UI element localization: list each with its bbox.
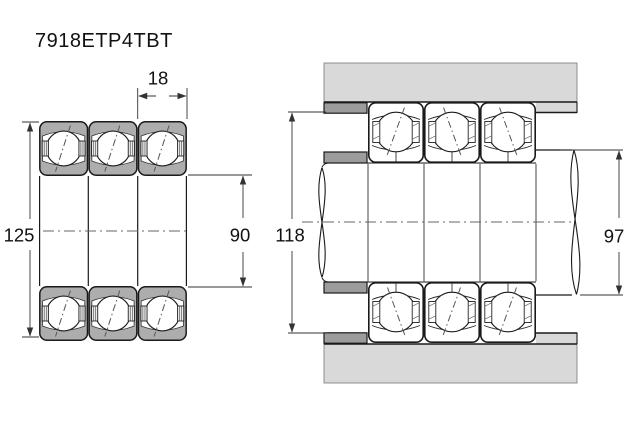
shaft-break-icon (572, 150, 579, 295)
drawing-title: 7918ETP4TBT (35, 30, 173, 52)
outer-diameter-label: 125 (4, 225, 35, 246)
bore-diameter-label: 90 (230, 225, 251, 246)
dimension-outer-diameter: 125 (4, 122, 39, 337)
bearing-unit (138, 122, 186, 175)
bearing-unit (40, 287, 88, 340)
bearing-unit (89, 287, 137, 340)
dimension-housing-abutment: 118 (275, 112, 328, 333)
housing-abutment-label: 118 (275, 225, 305, 246)
front-view: 125 90 18 (4, 68, 252, 341)
bearing-unit (40, 122, 88, 175)
drawing-canvas: 7918ETP4TBT (0, 0, 640, 440)
dimension-width: 18 (138, 68, 187, 120)
width-label: 18 (148, 68, 169, 89)
dimension-bore-diameter: 90 (188, 175, 252, 287)
bearing-drawing: 7918ETP4TBT (0, 0, 640, 440)
bearing-unit (89, 122, 137, 175)
mounted-view: 118 97 (275, 63, 624, 383)
shaft-abutment-label: 97 (604, 226, 625, 247)
spacer-rings (324, 103, 367, 343)
bearing-unit (138, 287, 186, 340)
